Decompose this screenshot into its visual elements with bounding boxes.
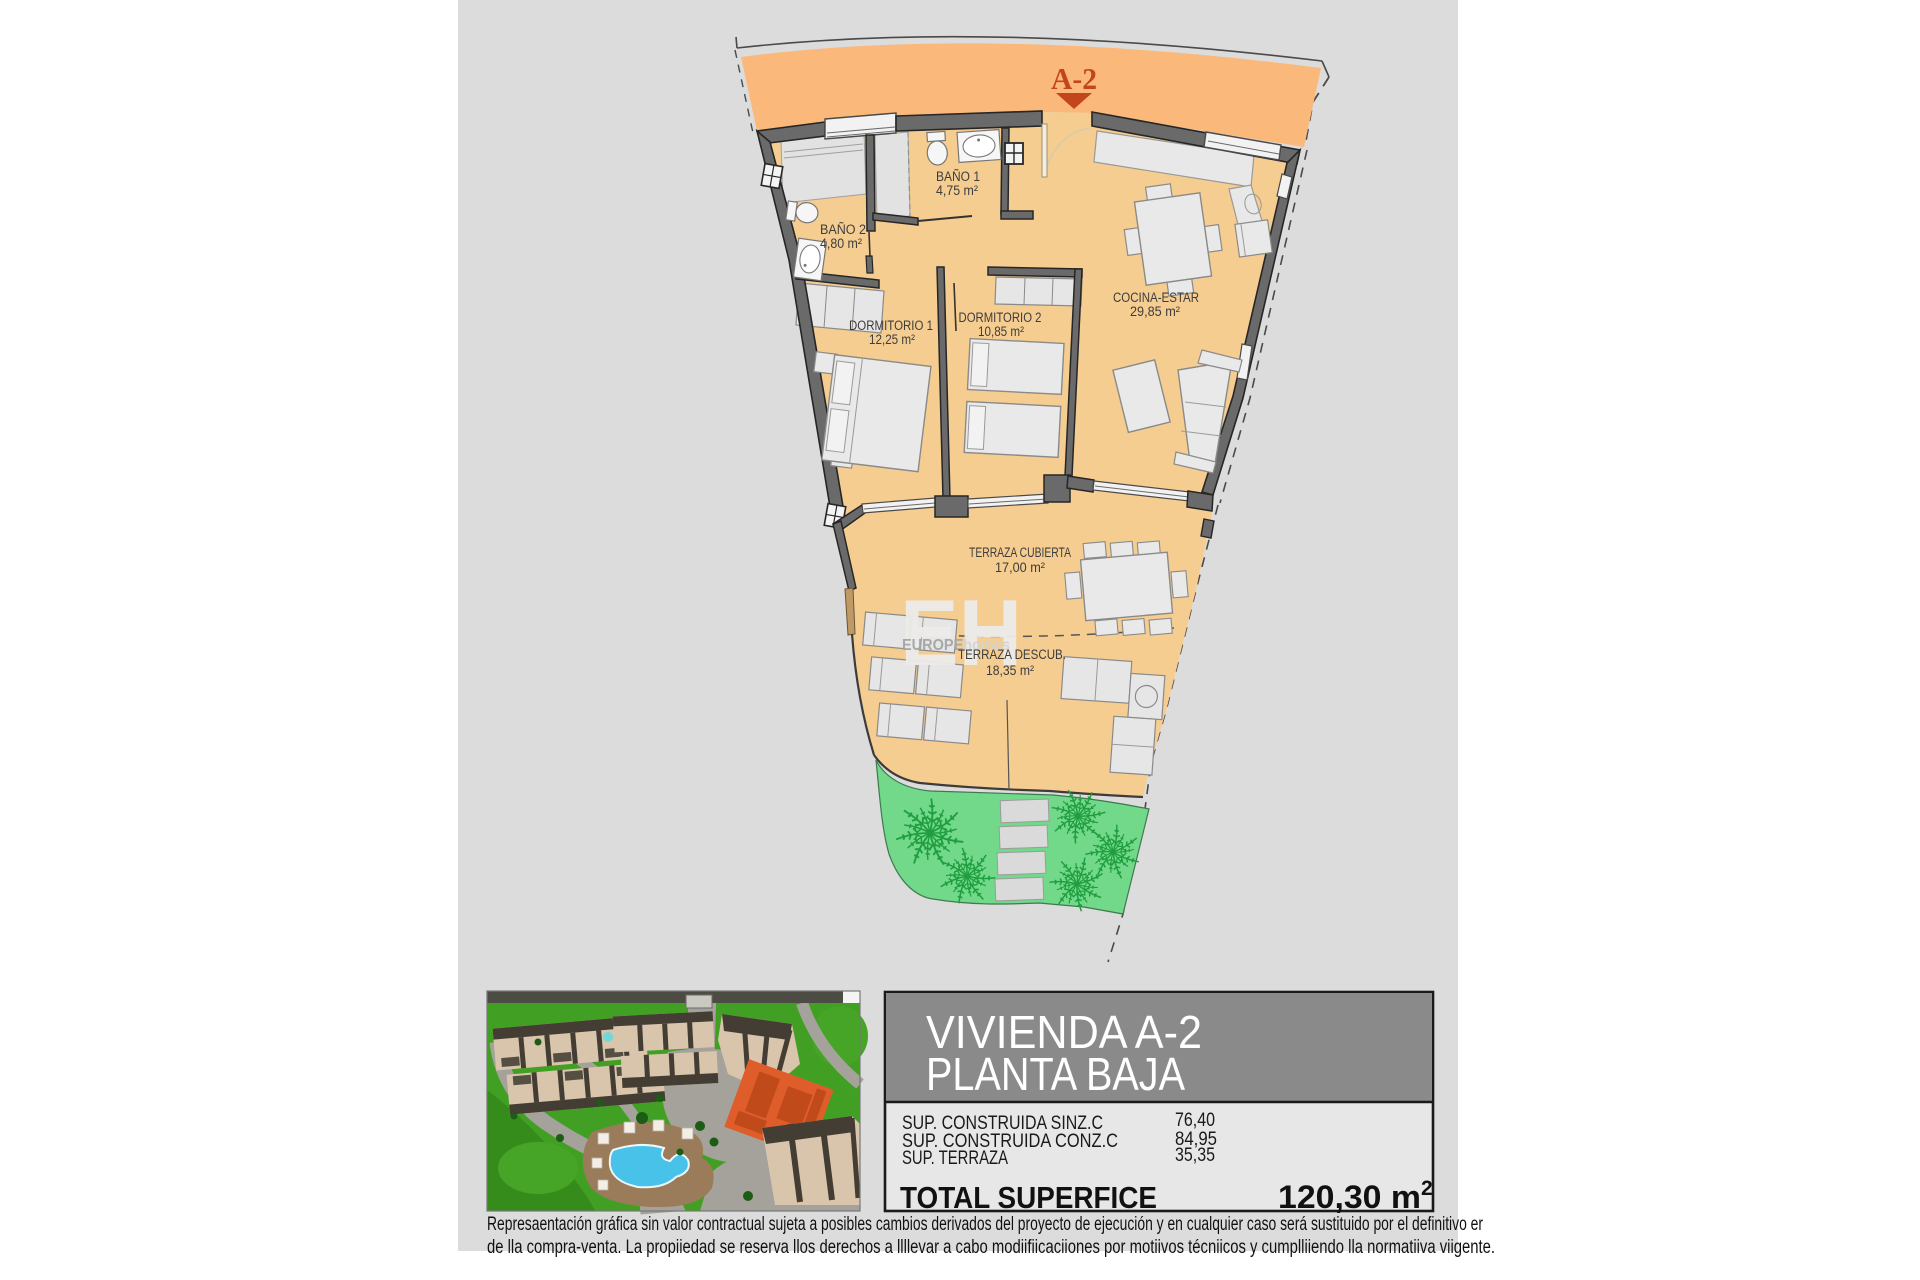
svg-text:COCINA-ESTAR: COCINA-ESTAR	[1113, 290, 1199, 305]
svg-text:BAÑO 2: BAÑO 2	[820, 222, 866, 237]
svg-text:BAÑO 1: BAÑO 1	[936, 169, 980, 184]
svg-text:A-2: A-2	[1051, 61, 1097, 96]
svg-text:DORMITORIO 1: DORMITORIO 1	[849, 318, 933, 333]
svg-text:17,00 m²: 17,00 m²	[995, 560, 1045, 575]
svg-text:4,80 m²: 4,80 m²	[820, 236, 862, 251]
svg-text:Represaentación gráfica sin va: Represaentación gráfica sin valor contra…	[487, 1214, 1483, 1235]
svg-text:SUP. TERRAZA: SUP. TERRAZA	[902, 1148, 1008, 1169]
svg-text:TERRAZA CUBIERTA: TERRAZA CUBIERTA	[969, 545, 1071, 560]
svg-text:TERRAZA DESCUB.: TERRAZA DESCUB.	[958, 647, 1066, 662]
svg-text:10,85 m²: 10,85 m²	[978, 324, 1024, 339]
svg-text:DORMITORIO 2: DORMITORIO 2	[959, 310, 1042, 325]
svg-text:12,25 m²: 12,25 m²	[869, 332, 915, 347]
svg-text:de lla compra-venta. La propii: de lla compra-venta. La propiiedad se re…	[487, 1237, 1495, 1258]
svg-text:18,35 m²: 18,35 m²	[986, 663, 1034, 678]
svg-text:PLANTA BAJA: PLANTA BAJA	[926, 1048, 1185, 1100]
svg-text:120,30 m: 120,30 m	[1278, 1179, 1421, 1215]
svg-text:35,35: 35,35	[1175, 1145, 1215, 1166]
svg-text:TOTAL SUPERFICE: TOTAL SUPERFICE	[900, 1180, 1157, 1215]
svg-text:29,85 m²: 29,85 m²	[1130, 304, 1180, 319]
svg-text:4,75 m²: 4,75 m²	[936, 183, 978, 198]
svg-text:2: 2	[1421, 1177, 1433, 1200]
svg-text:76,40: 76,40	[1175, 1110, 1215, 1131]
